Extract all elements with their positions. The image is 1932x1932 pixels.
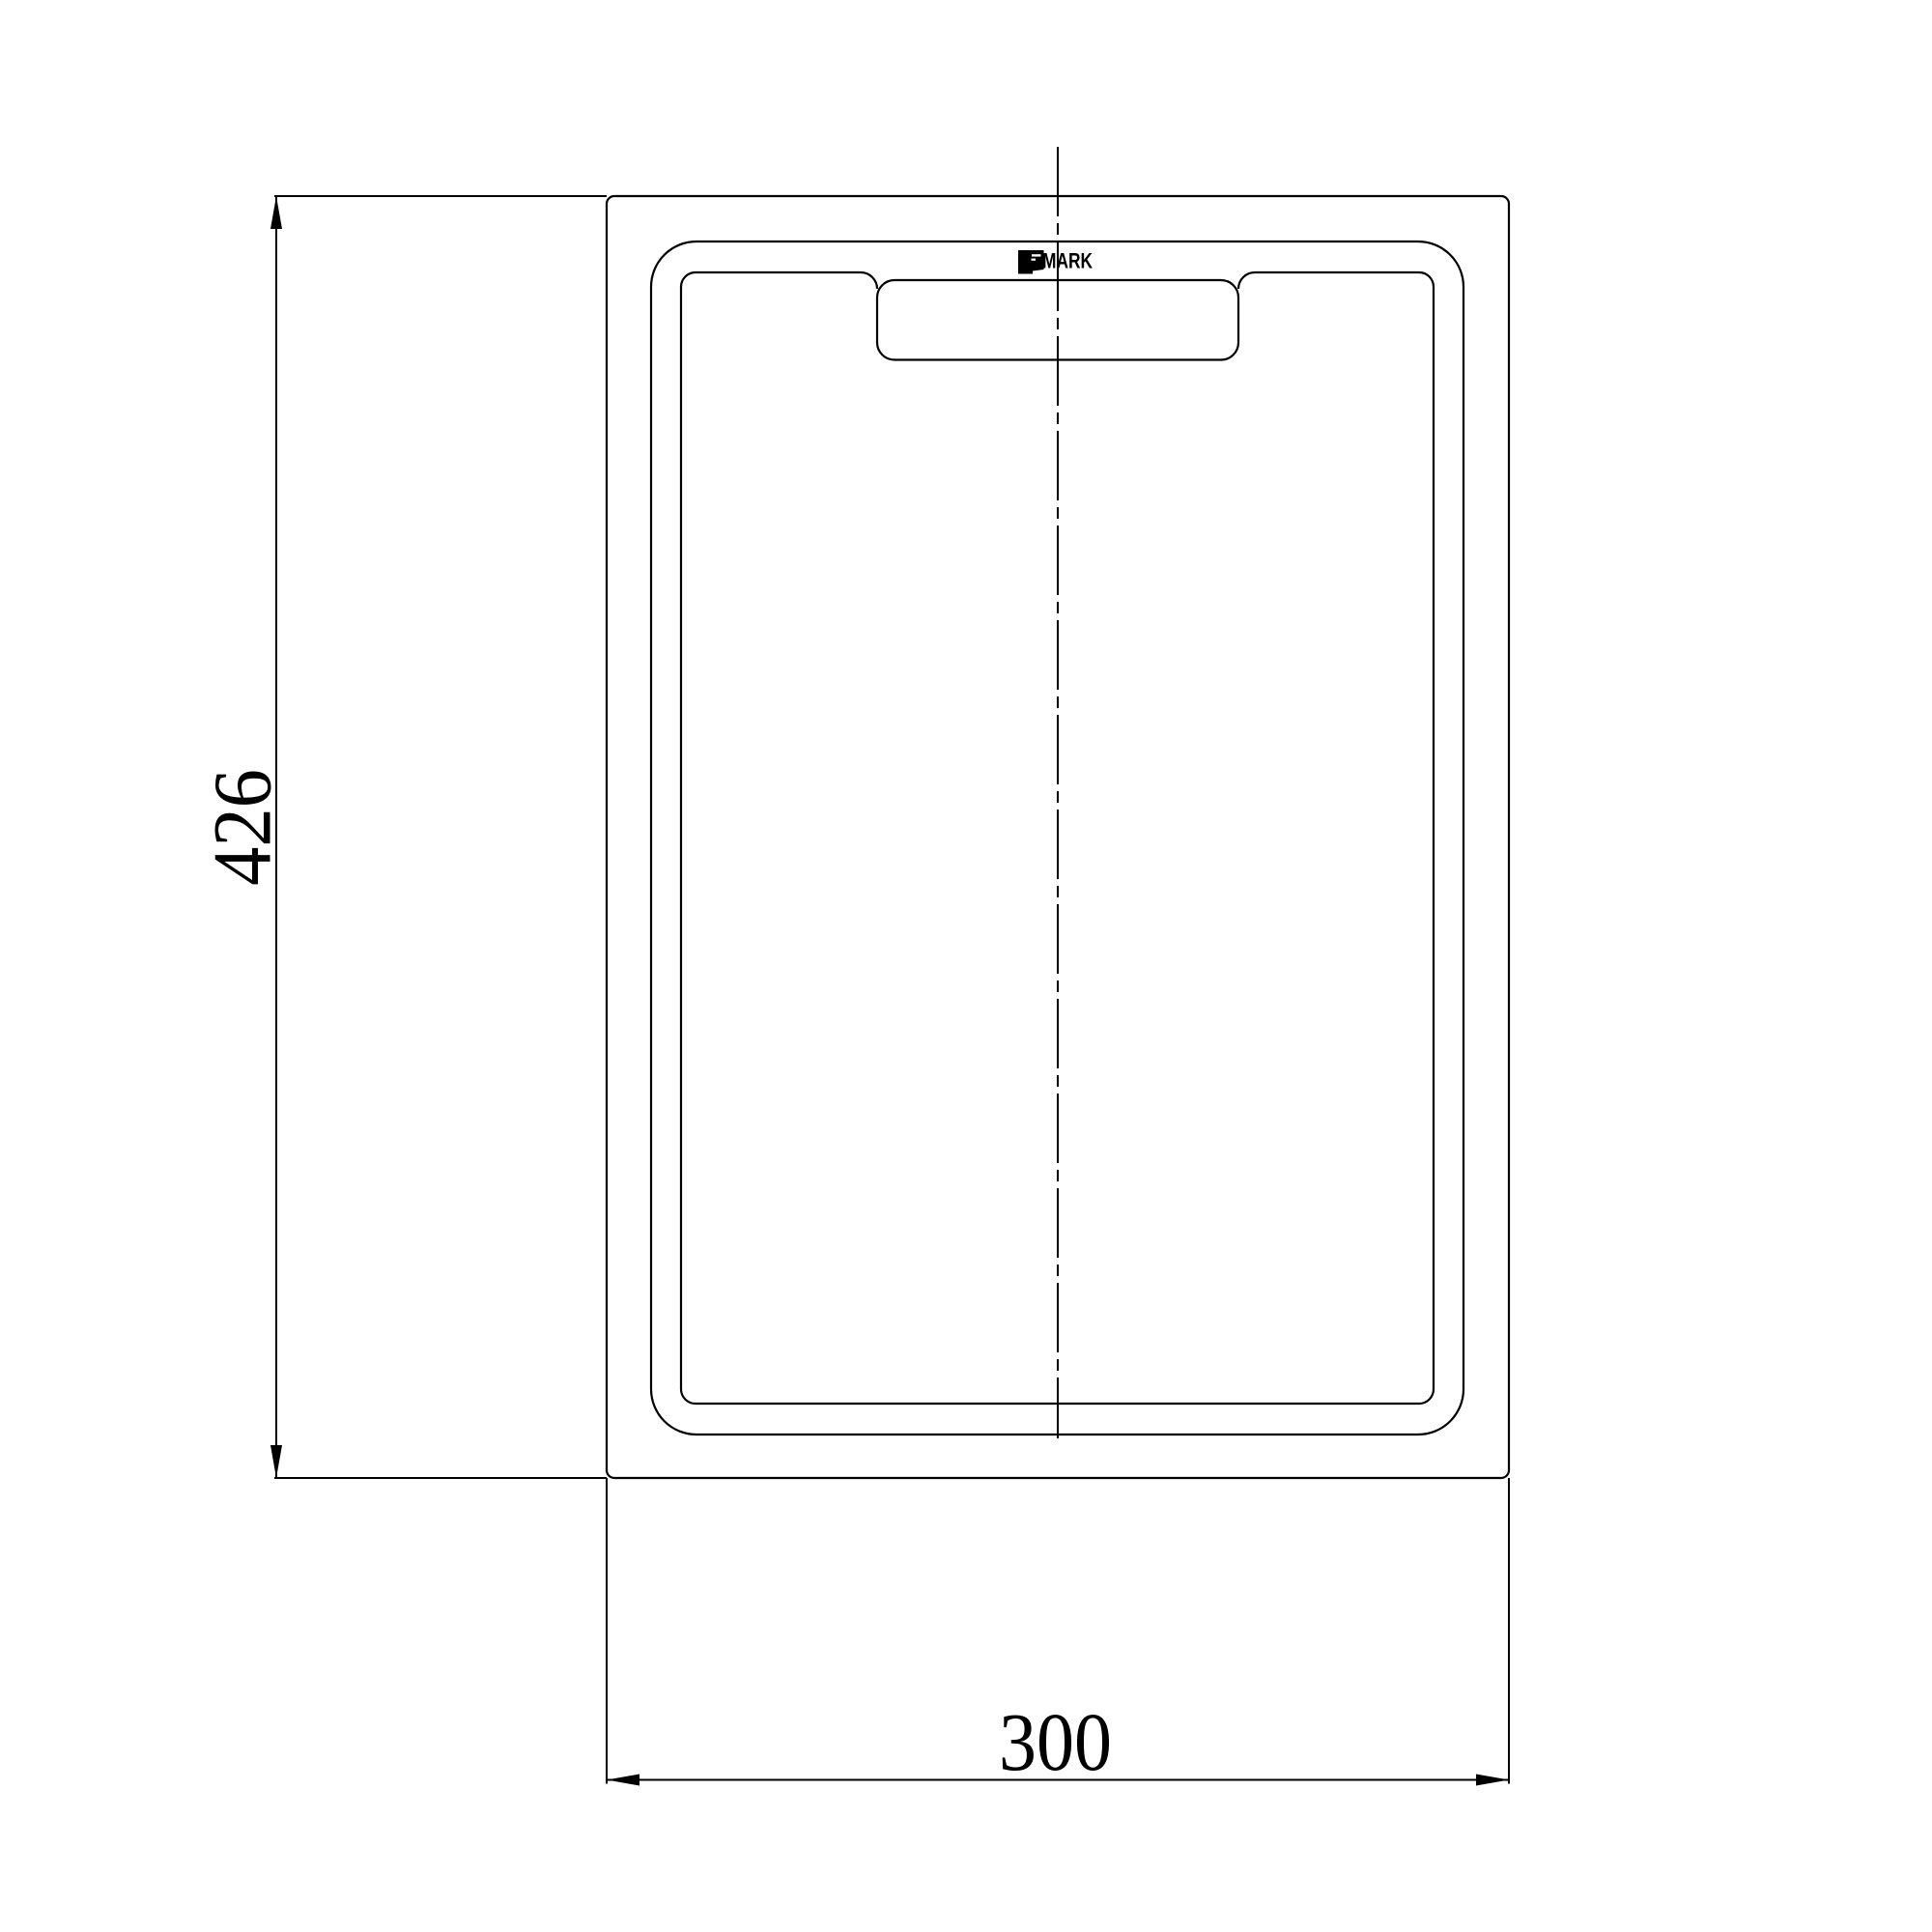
svg-text:426: 426 [196, 769, 289, 886]
svg-text:300: 300 [999, 1695, 1112, 1788]
svg-text:MARK: MARK [1042, 249, 1093, 273]
